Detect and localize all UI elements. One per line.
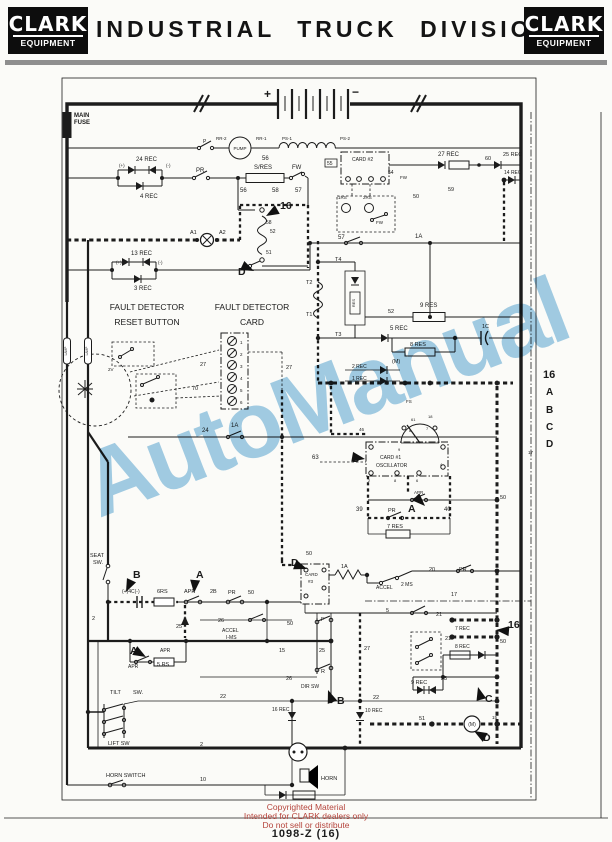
schematic-label: 46: [359, 427, 365, 432]
schematic-canvas: 16DDABAADBCD16 MAINFUSE+−PRR-2PUMPRR-1PS…: [0, 0, 612, 842]
schematic-label: (+)4C(-): [122, 589, 140, 595]
schematic-label: 50: [248, 590, 254, 596]
schematic-label: 1C: [482, 324, 489, 330]
schematic-label: FW: [376, 220, 384, 225]
schematic-label: T2: [306, 280, 312, 286]
horn-circuit: [67, 743, 347, 799]
schematic-label: 18: [428, 414, 433, 419]
schematic-label: MAIN: [74, 113, 89, 119]
schematic-label: 17: [451, 592, 457, 598]
test-point-label: 16: [508, 619, 520, 631]
schematic-label: 27: [200, 362, 206, 368]
schematic-label: LAMP: [64, 347, 68, 356]
schematic-label: (+): [119, 163, 125, 168]
schematic-label: 2: [92, 616, 95, 622]
motor-circle: [289, 743, 307, 761]
schematic-label: 15: [279, 648, 285, 654]
schematic-label: 22: [220, 694, 226, 700]
schematic-label: 10: [200, 777, 206, 783]
test-point-label: A: [196, 569, 204, 581]
schematic-label: T3: [335, 332, 341, 338]
schematic-label: 63: [312, 455, 319, 461]
schematic-label: 7 REC: [455, 626, 470, 632]
schematic-label: CARD: [305, 572, 319, 577]
schematic-label: 24: [202, 428, 209, 434]
schematic-label: CARD #1: [380, 455, 401, 461]
schematic-label: 22: [373, 695, 379, 701]
fault-detector-card: [221, 333, 282, 409]
schematic-label: FS: [406, 399, 412, 404]
schematic-label: 21: [436, 612, 442, 618]
schematic-label: B: [546, 405, 553, 416]
schematic-label: 26: [286, 676, 292, 682]
schematic-label: P: [203, 139, 207, 145]
schematic-label: CARD #2: [352, 157, 373, 163]
schematic-label: 50: [413, 194, 419, 200]
schematic-label: RR-2: [216, 136, 227, 141]
card2-block: [325, 152, 521, 241]
rectifier-row-24rec: [67, 166, 308, 205]
schematic-label: +: [264, 87, 271, 101]
schematic-label: DIR SW: [301, 684, 319, 690]
schematic-label: APR: [160, 648, 171, 654]
schematic-label: 51: [266, 250, 272, 256]
schematic-label: C: [546, 422, 553, 433]
wire-24: [128, 390, 497, 565]
resistor-rows: [355, 241, 521, 356]
schematic-label: 26: [218, 618, 224, 624]
schematic-label: RES: [351, 299, 356, 308]
test-point-label: B: [133, 569, 141, 581]
schematic-label: R: [321, 669, 325, 675]
schematic-label: D: [546, 439, 553, 450]
schematic-label: 16 REC: [272, 707, 290, 713]
schematic-label: 61: [411, 417, 416, 422]
schematic-label: 57: [295, 188, 302, 194]
schematic-label: SW.: [93, 560, 104, 566]
test-point-label: A: [408, 503, 416, 515]
schematic-label: SEAT: [90, 553, 105, 559]
battery-symbol: [278, 89, 348, 119]
schematic-label: CARD: [240, 317, 264, 327]
schematic-label: 2 MS: [401, 582, 413, 588]
schematic-label: APR: [414, 490, 424, 495]
schematic-label: 2: [368, 478, 371, 483]
schematic-label: 14 REC: [504, 170, 522, 176]
schematic-labels: MAINFUSE+−PRR-2PUMPRR-1PS-1PS-25624 REC(…: [64, 85, 555, 783]
schematic-label: RR-1: [256, 136, 267, 141]
mid-dashed-bus: [318, 366, 513, 385]
schematic-label: A1: [190, 230, 197, 236]
schematic-label: 59: [448, 187, 454, 193]
schematic-label: FW: [292, 165, 302, 171]
schematic-label: 50: [287, 621, 293, 627]
schematic-label: 2RS: [363, 195, 372, 200]
schematic-label: 51: [419, 716, 425, 722]
schematic-label: LIFT SW: [108, 741, 130, 747]
schematic-label: 60: [485, 156, 491, 162]
schematic-label: FAULT DETECTOR: [215, 302, 290, 312]
bottom-right-block: [305, 604, 521, 732]
schematic-label: (+): [116, 260, 122, 265]
schematic-label: 9 RES: [420, 303, 437, 309]
schematic-label: 24 REC: [136, 157, 158, 163]
schematic-label: 3 REC: [134, 286, 152, 292]
schematic-label: PUMP: [233, 146, 246, 151]
schematic-label: 40: [444, 507, 451, 513]
schematic-label: SW.: [133, 690, 144, 696]
test-point-arrow-icon: [264, 205, 280, 220]
schematic-label: 25 REC: [503, 152, 522, 158]
schematic-label: HORN: [321, 776, 337, 782]
schematic-label: 70: [192, 386, 198, 392]
schematic-label: 1 REC: [352, 376, 367, 382]
schematic-label: 25: [319, 648, 325, 654]
horn-speaker-icon: [300, 769, 309, 782]
schematic-label: 6RS: [157, 589, 168, 595]
schematic-label: 1: [240, 340, 243, 345]
schematic-label: 58: [272, 188, 279, 194]
schematic-label: 52: [388, 309, 394, 315]
schematic-label: 39: [356, 507, 363, 513]
schematic-label: #3: [308, 579, 314, 584]
schematic-frame: [4, 78, 608, 818]
schematic-label: 4: [240, 376, 243, 381]
schematic-label: 5: [386, 608, 389, 614]
schematic-label: −: [352, 85, 359, 99]
schematic-label: 50: [500, 639, 506, 645]
schematic-label: 27: [364, 646, 370, 652]
schematic-label: (M): [392, 359, 400, 365]
schematic-label: LAMP: [85, 347, 89, 356]
schematic-label: 9 REC: [411, 680, 427, 686]
schematic-label: 50: [500, 495, 506, 501]
schematic-label: 56: [240, 188, 247, 194]
schematic-label: 7 RES: [387, 524, 403, 530]
schematic-label: 52: [270, 229, 276, 235]
document-number: 1098-Z (16): [0, 828, 612, 840]
schematic-label: 2: [200, 742, 203, 748]
schematic-label: PS-1: [282, 136, 293, 141]
schematic-label: 55: [327, 161, 333, 167]
schematic-label: TILT: [110, 690, 122, 696]
oscillator-card: [320, 386, 499, 538]
main-fuse-symbol: [63, 112, 72, 138]
test-point-label: 16: [280, 200, 292, 212]
schematic-label: 13 REC: [131, 251, 153, 257]
scanned-page: CLARK EQUIPMENT INDUSTRIAL TRUCK DIVISIO…: [0, 0, 612, 842]
rectifier-row-13rec: [67, 241, 312, 283]
schematic-label: ACCEL: [222, 628, 239, 634]
schematic-label: 1RS: [338, 195, 347, 200]
schematic-label: A2: [219, 230, 226, 236]
schematic-label: 1A: [415, 234, 422, 240]
test-point-label: B: [337, 695, 345, 707]
schematic-label: 27 REC: [438, 152, 460, 158]
schematic-label: 58: [266, 220, 272, 226]
fault-reset-button: [59, 342, 221, 426]
schematic-label: 1A: [341, 564, 348, 570]
schematic-label: 6: [416, 478, 419, 483]
schematic-label: PR: [228, 590, 236, 596]
schematic-label: 7: [426, 426, 429, 431]
schematic-label: APR: [128, 664, 139, 670]
schematic-label: 8 REC: [455, 644, 470, 650]
schematic-label: 6: [240, 400, 243, 405]
schematic-label: 5 RS: [157, 662, 170, 668]
schematic-label: FW: [400, 175, 408, 180]
schematic-label: 2: [240, 352, 243, 357]
schematic-label: PR: [388, 508, 396, 514]
schematic-label: A: [546, 387, 553, 398]
schematic-label: 21: [445, 636, 451, 642]
schematic-label: 54: [388, 170, 394, 176]
schematic-label: (-): [166, 163, 171, 168]
schematic-label: 5: [240, 388, 243, 393]
schematic-label: 23: [441, 676, 447, 682]
schematic-label: 1A: [231, 423, 238, 429]
schematic-label: HORN SWITCH: [106, 773, 145, 779]
schematic-label: PS-2: [340, 136, 351, 141]
indicator-lamps: [64, 240, 109, 748]
schematic-label: 5 REC: [390, 326, 408, 332]
schematic-label: 10 REC: [365, 708, 383, 714]
schematic-label: (-): [158, 260, 163, 265]
schematic-label: (M): [468, 722, 476, 728]
schematic-label: I-MS: [226, 635, 237, 641]
schematic-label: 8 RES: [410, 342, 426, 348]
schematic-label: T1: [306, 312, 312, 318]
schematic-label: 17: [528, 450, 534, 455]
schematic-label: 27: [286, 365, 292, 371]
schematic-label: 20: [429, 567, 435, 573]
schematic-label: FAULT DETECTOR: [110, 302, 185, 312]
schematic-label: PR: [459, 567, 467, 573]
schematic-label: RESET BUTTON: [114, 317, 179, 327]
schematic-label: PR: [196, 168, 205, 174]
test-point-arrow-icon: [323, 688, 337, 704]
schematic-label: S/RES: [254, 165, 272, 171]
schematic-label: OSCILLATOR: [376, 463, 408, 469]
schematic-label: T4: [335, 257, 341, 263]
schematic-label: 2 REC: [352, 364, 367, 370]
schematic-label: 16: [543, 369, 555, 381]
schematic-label: 15: [492, 715, 498, 720]
schematic-label: APR: [184, 589, 195, 595]
schematic-label: ACCEL: [376, 585, 393, 591]
schematic-label: FUSE: [74, 120, 90, 126]
schematic-label: 3: [240, 364, 243, 369]
schematic-label: 25: [176, 624, 182, 630]
schematic-label: 50: [306, 551, 312, 557]
schematic-label: 57: [338, 235, 345, 241]
schematic-label: 4 REC: [140, 194, 158, 200]
schematic-label: 56: [262, 156, 269, 162]
schematic-label: 9: [398, 447, 401, 452]
test-point-label: C: [485, 693, 493, 705]
tilt-lift-switches: [102, 701, 138, 738]
coil-symbol: [279, 143, 335, 149]
schematic-label: 2V: [108, 367, 114, 372]
card3-row: [301, 564, 531, 604]
schematic-label: 2B: [210, 589, 217, 595]
a1-a2-connector-row: [67, 234, 240, 247]
schematic-label: 8: [394, 478, 397, 483]
